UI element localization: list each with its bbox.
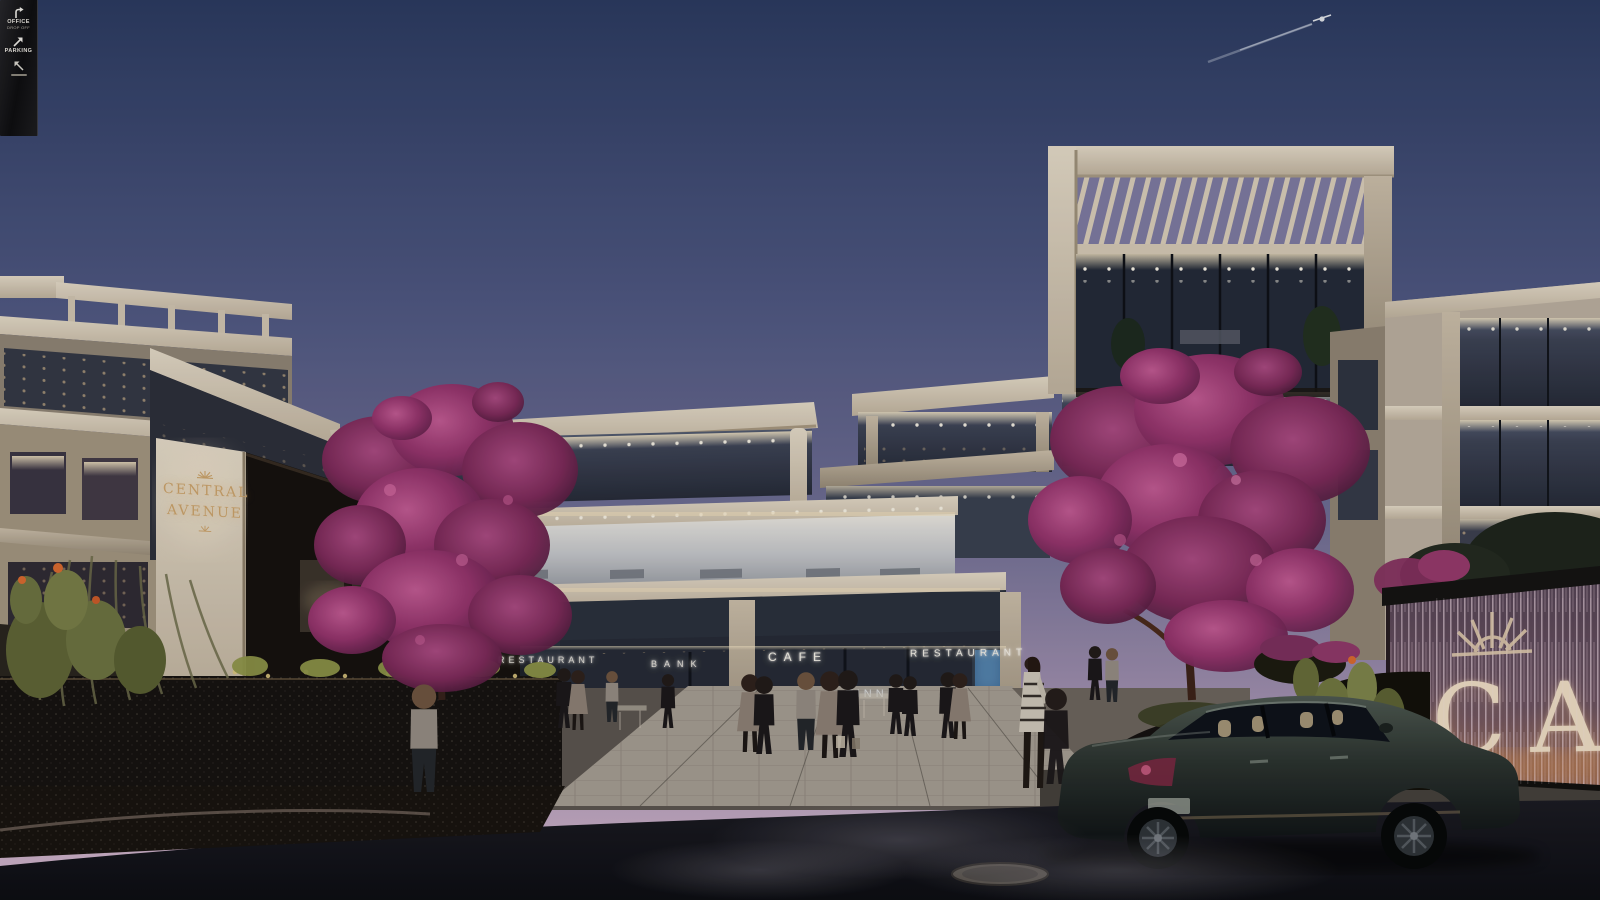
architectural-rendering-scene: CENTRAL AVENUE RESTAURANT BANK CAFE REST… — [0, 0, 1600, 900]
vignette — [0, 0, 1600, 900]
foreground-illustration — [0, 0, 1600, 900]
